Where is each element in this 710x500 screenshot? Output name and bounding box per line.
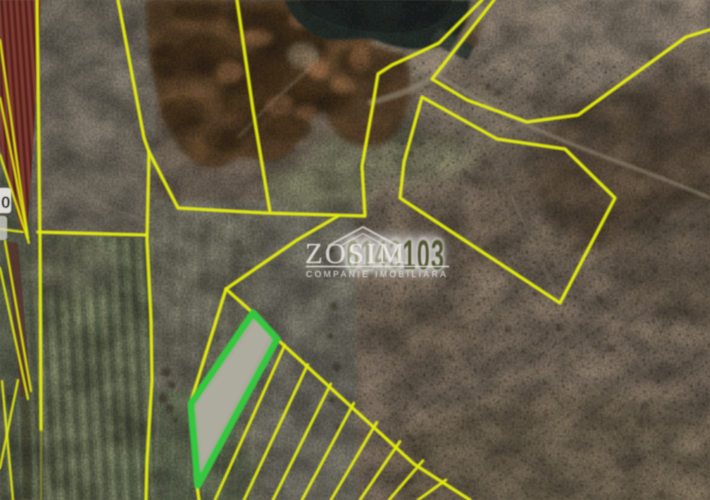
svg-text:COMPANIE IMOBILIARA: COMPANIE IMOBILIARA (306, 269, 448, 279)
svg-text:ZOSIM: ZOSIM (305, 238, 406, 270)
svg-text:0: 0 (1, 193, 10, 212)
